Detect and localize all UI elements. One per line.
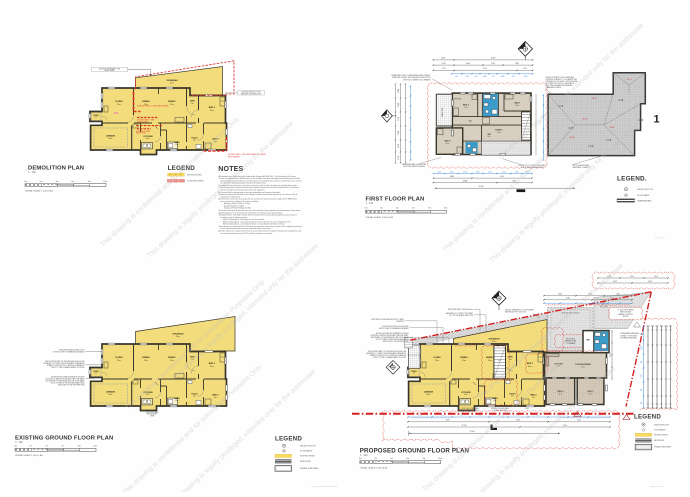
svg-text:10m: 10m — [93, 446, 97, 448]
svg-text:EXISTING WORKS: EXISTING WORKS — [187, 175, 203, 177]
svg-text:1,200: 1,200 — [641, 346, 643, 350]
svg-text:1,749: 1,749 — [442, 68, 446, 70]
svg-text:BALCONY: BALCONY — [441, 107, 444, 117]
svg-text:8,880: 8,880 — [450, 176, 454, 178]
svg-text:1,080: 1,080 — [524, 76, 528, 78]
svg-text:2,710: 2,710 — [502, 171, 506, 173]
svg-text:8,110: 8,110 — [446, 420, 450, 422]
svg-text:SMOKE DETECTOR: SMOKE DETECTOR — [300, 446, 317, 448]
svg-text:2,470: 2,470 — [398, 144, 400, 148]
svg-text:EXISTING WORKS: EXISTING WORKS — [654, 435, 668, 437]
svg-text:2,410: 2,410 — [418, 415, 421, 417]
svg-text:3,600: 3,600 — [558, 293, 562, 295]
svg-text:FAMILY: FAMILY — [495, 129, 503, 132]
svg-text:DEMOLISHED: DEMOLISHED — [104, 70, 115, 72]
svg-text:4m: 4m — [56, 181, 59, 183]
svg-text:4,110: 4,110 — [610, 298, 614, 300]
svg-text:PROPOSED: PROPOSED — [566, 339, 576, 341]
svg-text:1 : 100: 1 : 100 — [15, 441, 23, 444]
svg-text:VISUAL SCALE 1:100 @ A3: VISUAL SCALE 1:100 @ A3 — [15, 454, 43, 457]
svg-text:900: 900 — [641, 333, 643, 336]
svg-text:2,710: 2,710 — [463, 171, 467, 173]
svg-text:NEW OPENING: NEW OPENING — [228, 156, 240, 158]
svg-text:EXISTING GROUND FLOOR PLAN: EXISTING GROUND FLOOR PLAN — [15, 435, 113, 441]
svg-text:17,240: 17,240 — [479, 186, 484, 188]
svg-text:8,110: 8,110 — [483, 68, 487, 70]
svg-text:5,880: 5,880 — [525, 408, 529, 410]
svg-text:11,880: 11,880 — [491, 58, 496, 60]
svg-text:900: 900 — [641, 361, 643, 364]
svg-text:3,620: 3,620 — [648, 281, 652, 283]
svg-text:2,710: 2,710 — [488, 171, 492, 173]
svg-text:17,240: 17,240 — [470, 431, 475, 433]
svg-text:5,600: 5,600 — [466, 63, 470, 65]
svg-text:6,140: 6,140 — [577, 420, 581, 422]
svg-text:REMOVED FOR NEW DOOR: REMOVED FOR NEW DOOR — [241, 93, 262, 95]
svg-text:2,990: 2,990 — [398, 131, 400, 135]
svg-text:SELECTED (REFER LEGEND): SELECTED (REFER LEGEND) — [403, 166, 425, 168]
svg-text:3,560: 3,560 — [398, 103, 400, 107]
svg-text:DEMOLITION PLAN: DEMOLITION PLAN — [28, 166, 84, 172]
svg-text:TO BE DEMOLISHED: TO BE DEMOLISHED — [187, 181, 204, 183]
svg-text:8m: 8m — [429, 208, 432, 210]
svg-text:6m: 6m — [412, 208, 415, 210]
svg-text:1,800: 1,800 — [459, 415, 462, 417]
svg-text:0m: 0m — [365, 208, 368, 210]
svg-text:9,010: 9,010 — [563, 425, 567, 427]
svg-text:LOUNGE/DINING: LOUNGE/DINING — [575, 364, 592, 366]
svg-text:EXISTING WALL TO BE DEMOLISHED: EXISTING WALL TO BE DEMOLISHED — [137, 104, 170, 107]
svg-text:2m: 2m — [380, 208, 383, 210]
svg-text:SHOWN: SHOWN — [623, 316, 629, 318]
svg-text:2 RISE: 2 RISE — [150, 416, 155, 418]
svg-text:LEGEND: LEGEND — [275, 436, 302, 443]
svg-text:4,110: 4,110 — [610, 353, 612, 357]
svg-text:2,350: 2,350 — [501, 76, 505, 78]
svg-text:EXISTING WINDOW TO BE: EXISTING WINDOW TO BE — [242, 92, 261, 94]
svg-text:800: 800 — [641, 402, 643, 405]
svg-text:1,100: 1,100 — [476, 171, 480, 173]
svg-text:3,887: 3,887 — [515, 63, 519, 65]
svg-text:4m: 4m — [46, 446, 49, 448]
svg-text:LEGEND.: LEGEND. — [617, 176, 647, 183]
svg-text:4,820: 4,820 — [613, 281, 617, 283]
svg-text:10m: 10m — [444, 208, 448, 210]
svg-text:DEMOLISHED: DEMOLISHED — [137, 122, 148, 124]
svg-text:2,020: 2,020 — [536, 415, 539, 417]
svg-text:14,880: 14,880 — [463, 181, 468, 183]
svg-text:PRIVATE OPEN SPACE: PRIVATE OPEN SPACE — [300, 467, 319, 470]
svg-text:810: 810 — [512, 76, 515, 78]
svg-text:2,410: 2,410 — [654, 276, 658, 278]
svg-text:THE ROBE: THE ROBE — [454, 99, 461, 101]
svg-text:11,240: 11,240 — [462, 425, 467, 427]
svg-text:PROPOSED GROUND FLOOR PLAN: PROPOSED GROUND FLOOR PLAN — [360, 448, 470, 455]
svg-text:3,510: 3,510 — [442, 63, 446, 65]
svg-text:SMOKE DETECTOR: SMOKE DETECTOR — [637, 189, 654, 191]
svg-text:FLOOR WASTE: FLOOR WASTE — [637, 194, 650, 197]
svg-text:BED 4: BED 4 — [558, 390, 565, 393]
svg-text:8m: 8m — [423, 458, 426, 460]
svg-text:BED 2: BED 2 — [463, 105, 470, 107]
svg-text:WEATHERBOARD: WEATHERBOARD — [637, 199, 652, 202]
svg-text:1,980: 1,980 — [440, 415, 443, 417]
svg-text:0m: 0m — [359, 458, 362, 460]
svg-text:0m: 0m — [24, 181, 27, 183]
svg-text:5,560: 5,560 — [441, 58, 445, 60]
svg-text:1,100: 1,100 — [515, 171, 519, 173]
svg-text:1,910: 1,910 — [478, 415, 481, 417]
svg-text:BED 4: BED 4 — [445, 139, 452, 142]
svg-text:NEW WORKS: NEW WORKS — [654, 440, 664, 442]
svg-text:2m: 2m — [374, 458, 377, 460]
svg-text:PRIOR TO THE COMMENCEMENT OF W: PRIOR TO THE COMMENCEMENT OF WORK — [51, 367, 86, 369]
svg-text:6m: 6m — [72, 181, 75, 183]
svg-text:SMOKE DETECTOR: SMOKE DETECTOR — [654, 424, 670, 426]
svg-text:EXISTING GROUND FLOOR HOUSE: EXISTING GROUND FLOOR HOUSE — [382, 326, 408, 328]
svg-text:8,110: 8,110 — [500, 176, 504, 178]
svg-text:DEMOLISHED: DEMOLISHED — [136, 133, 147, 135]
svg-text:1,180: 1,180 — [437, 171, 441, 173]
svg-text:NEW WORKS: NEW WORKS — [300, 461, 312, 463]
svg-text:LEGEND: LEGEND — [634, 414, 661, 421]
svg-text:SELECTED BY THE PROPRIETORS: SELECTED BY THE PROPRIETORS — [383, 341, 409, 343]
svg-text:1,200: 1,200 — [641, 374, 643, 378]
svg-text:3,110: 3,110 — [398, 117, 400, 121]
svg-text:VISUAL SCALE 1:100 @ A3: VISUAL SCALE 1:100 @ A3 — [25, 189, 53, 192]
svg-text:750: 750 — [492, 76, 495, 78]
svg-text:2,890: 2,890 — [616, 293, 620, 295]
svg-text:BED 1: BED 1 — [514, 103, 521, 105]
svg-text:2,110: 2,110 — [398, 156, 400, 160]
svg-text:EXISTING WORKS: EXISTING WORKS — [300, 456, 316, 458]
svg-text:900: 900 — [475, 76, 478, 78]
svg-text:VISUAL SCALE 1:100 @ A3: VISUAL SCALE 1:100 @ A3 — [360, 466, 388, 469]
svg-text:6,040: 6,040 — [566, 298, 570, 300]
svg-text:1 : 100: 1 : 100 — [360, 454, 368, 457]
svg-text:2,890: 2,890 — [398, 89, 400, 93]
svg-text:6m: 6m — [406, 458, 409, 460]
svg-text:6m: 6m — [62, 446, 65, 448]
svg-text:1: 1 — [654, 114, 660, 126]
svg-text:4m: 4m — [396, 208, 399, 210]
svg-text:4m: 4m — [390, 458, 393, 460]
svg-text:8m: 8m — [88, 181, 91, 183]
svg-text:2m: 2m — [30, 446, 33, 448]
svg-text:3,790: 3,790 — [491, 63, 495, 65]
svg-text:2,210: 2,210 — [597, 415, 600, 417]
svg-text:PRIOR TO THE COMMENCEMENT OF W: PRIOR TO THE COMMENCEMENT OF WORK — [373, 357, 407, 359]
svg-text:1 : 100: 1 : 100 — [366, 202, 374, 205]
svg-text:FLOOR WASTE: FLOOR WASTE — [300, 450, 313, 453]
svg-text:10m: 10m — [103, 181, 107, 183]
svg-text:1,149: 1,149 — [523, 68, 527, 70]
svg-text:CONNECT TO EXISTING: CONNECT TO EXISTING — [620, 335, 638, 337]
svg-text:900: 900 — [641, 389, 643, 392]
svg-text:RIDGE: RIDGE — [610, 127, 615, 129]
svg-text:0m: 0m — [14, 446, 17, 448]
svg-text:+RL 6.41: +RL 6.41 — [582, 119, 588, 121]
svg-text:SELECTED BY THE PROPRIETORS: SELECTED BY THE PROPRIETORS — [58, 385, 85, 387]
svg-text:+RL 6.75: +RL 6.75 — [591, 98, 597, 100]
svg-text:EXISTING KITCHEN: EXISTING KITCHEN — [136, 131, 150, 133]
svg-text:UP: UP — [498, 360, 500, 362]
svg-text:2,410: 2,410 — [630, 276, 634, 278]
svg-text:8m: 8m — [78, 446, 81, 448]
svg-text:FIRST FLOOR PLAN: FIRST FLOOR PLAN — [366, 197, 425, 203]
svg-text:VISUAL SCALE 1:100 @ A3: VISUAL SCALE 1:100 @ A3 — [366, 216, 394, 219]
svg-text:700: 700 — [455, 76, 458, 78]
svg-text:1,210: 1,210 — [465, 76, 469, 78]
svg-text:1,310: 1,310 — [483, 76, 487, 78]
svg-text:1 : 100: 1 : 100 — [28, 171, 36, 174]
svg-text:+RL 5.9: +RL 5.9 — [626, 79, 631, 81]
svg-text:2m: 2m — [40, 181, 43, 183]
svg-text:5,880: 5,880 — [516, 420, 520, 422]
svg-text:2,470: 2,470 — [450, 171, 454, 173]
svg-text:10m: 10m — [438, 458, 442, 460]
svg-text:1,980: 1,980 — [516, 415, 519, 417]
